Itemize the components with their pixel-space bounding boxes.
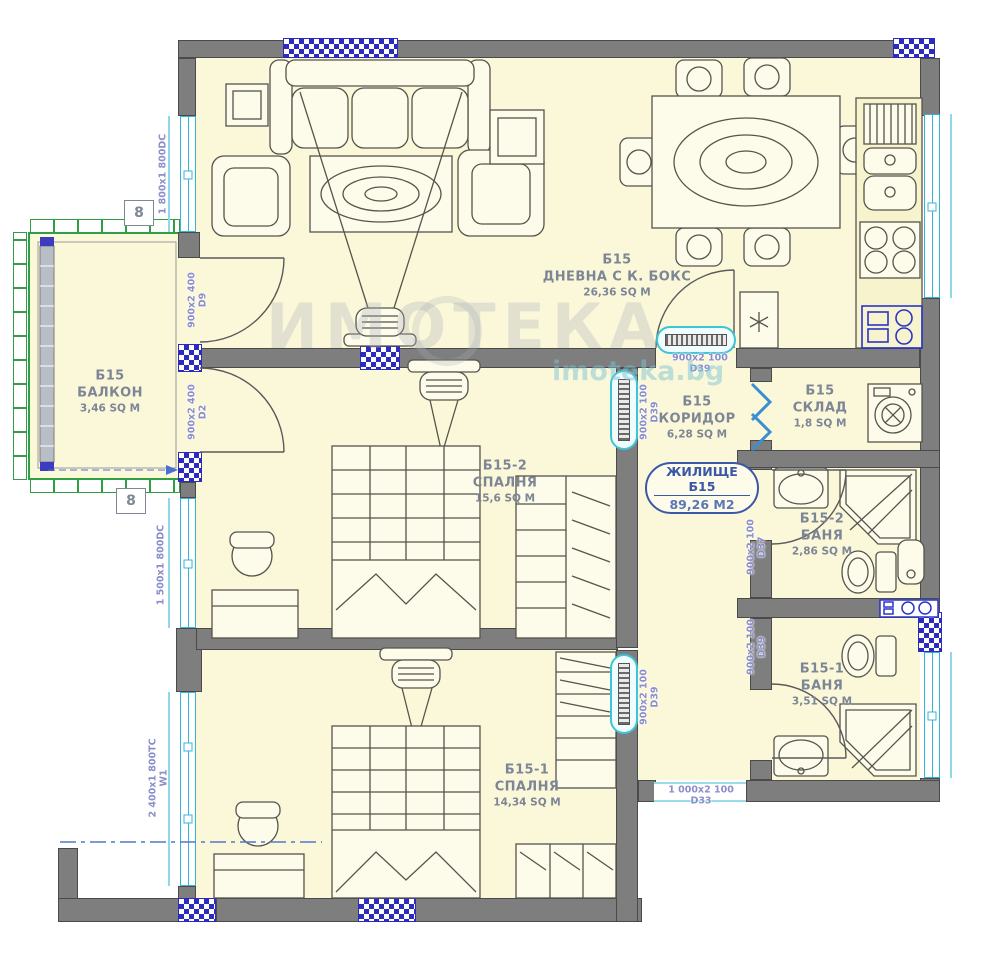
apartment-badge: ЖИЛИЩЕ Б15 89,26 М2 [645,462,759,514]
floor-plan: Б15 ДНЕВНА С К. БОКС 26,36 SQ M Б15 БАЛК… [0,0,1000,961]
room-label-bedroom1: Б15-1 СПАЛНЯ 14,34 SQ M [493,762,560,809]
room-name: СПАЛНЯ [473,475,538,492]
room-area: 3,51 SQ M [792,695,852,709]
room-name: БАНЯ [792,528,852,545]
apartment-badge-area: 89,26 М2 [669,496,734,512]
tv-bedroom2 [408,360,480,454]
label-door-bedroom1: 900x2 100 D39 [639,669,662,725]
room-label-corridor: Б15 КОРИДОР 6,28 SQ M [658,394,735,441]
label-door-living: 900x2 100 D39 [672,353,728,376]
label-window-left-top: 1 800x1 800DC [157,134,168,214]
dim-size: 900x2 100 [746,619,757,675]
balcony-railing [38,237,178,475]
sliding-door-living [656,326,736,354]
storage-opening-chevrons [752,384,770,450]
room-area: 15,6 SQ M [473,492,538,506]
room-unit: Б15 [658,394,735,411]
label-door-bath1: 900x2 100 D39 [746,619,769,675]
label-door-d9: 900x2 400 D9 [187,272,210,328]
room-label-storage: Б15 СКЛАД 1,8 SQ M [793,383,848,430]
room-name: ДНЕВНА С К. БОКС [543,269,691,286]
bath1-shower [840,704,916,776]
bath-cabinet [880,600,938,617]
room-label-bedroom2: Б15-2 СПАЛНЯ 15,6 SQ M [473,458,538,505]
bed-bedroom1 [214,726,480,898]
dim-size: 900x2 100 [639,384,650,440]
room-unit: Б15-2 [792,511,852,528]
dim-code: D39 [757,619,768,675]
room-label-balcony: Б15 БАЛКОН 3,46 SQ M [77,368,143,415]
door-panel [665,334,727,346]
label-door-entrance: 1 000x2 100 D33 [668,785,734,808]
room-unit: Б15 [793,383,848,400]
sliding-door-bedroom2 [610,370,638,450]
dim-code: D37 [757,519,768,575]
dim-code: D33 [668,796,734,807]
label-window-left-mid: 1 500x1 800DC [155,525,166,605]
sliding-door-bedroom1 [610,654,638,734]
dim-size: 900x2 100 [746,519,757,575]
room-name: БАЛКОН [77,385,143,402]
grid-marker-bottom: 8 [116,488,146,514]
room-label-living: Б15 ДНЕВНА С К. БОКС 26,36 SQ M [543,252,691,299]
room-name: СПАЛНЯ [493,779,560,796]
room-unit: Б15-1 [493,762,560,779]
door-panel [618,663,630,725]
room-area: 26,36 SQ M [543,286,691,300]
dim-code: D39 [672,364,728,375]
bed-bedroom2 [212,446,480,638]
kitchen-counter [856,98,922,348]
dim-size: 900x2 400 [187,272,198,328]
room-unit: Б15-2 [473,458,538,475]
dim-size: 900x2 100 [672,353,728,364]
room-area: 6,28 SQ M [658,428,735,442]
room-area: 14,34 SQ M [493,796,560,810]
dim-code: W1 [159,738,170,817]
dim-size: 1 500x1 800DC [155,525,166,605]
dim-size: 2 400x1 800TC [148,738,159,817]
dim-code: D2 [198,384,209,440]
dim-size: 900x2 100 [639,669,650,725]
room-label-bath1: Б15-1 БАНЯ 3,51 SQ M [792,661,852,708]
washing-machine [868,384,922,442]
room-label-bath2: Б15-2 БАНЯ 2,86 SQ M [792,511,852,558]
grid-marker-top: 8 [124,200,154,226]
coffee-table [310,156,452,232]
room-area: 2,86 SQ M [792,545,852,559]
dim-size: 1 000x2 100 [668,785,734,796]
room-name: СКЛАД [793,400,848,417]
room-unit: Б15 [77,368,143,385]
room-name: КОРИДОР [658,411,735,428]
water-heater [898,540,924,584]
room-area: 1,8 SQ M [793,417,848,431]
bath2-sink [774,468,828,508]
door-panel [618,379,630,441]
dining-set [620,58,874,266]
room-unit: Б15-1 [792,661,852,678]
fridge [740,292,778,348]
room-name: БАНЯ [792,678,852,695]
apartment-badge-title: ЖИЛИЩЕ Б15 [654,464,751,496]
dim-size: 900x2 400 [187,384,198,440]
label-door-bedroom2: 900x2 100 D39 [639,384,662,440]
dim-size: 1 800x1 800DC [157,134,168,214]
room-area: 3,46 SQ M [77,402,143,416]
dim-code: D39 [650,669,661,725]
room-unit: Б15 [543,252,691,269]
bath1-sink [774,736,828,776]
label-door-d2: 900x2 400 D2 [187,384,210,440]
armchair-left [212,156,290,236]
label-window-left-bottom: 2 400x1 800TC W1 [148,738,171,817]
dim-code: D39 [650,384,661,440]
label-door-bath2: 900x2 100 D37 [746,519,769,575]
dim-code: D9 [198,272,209,328]
